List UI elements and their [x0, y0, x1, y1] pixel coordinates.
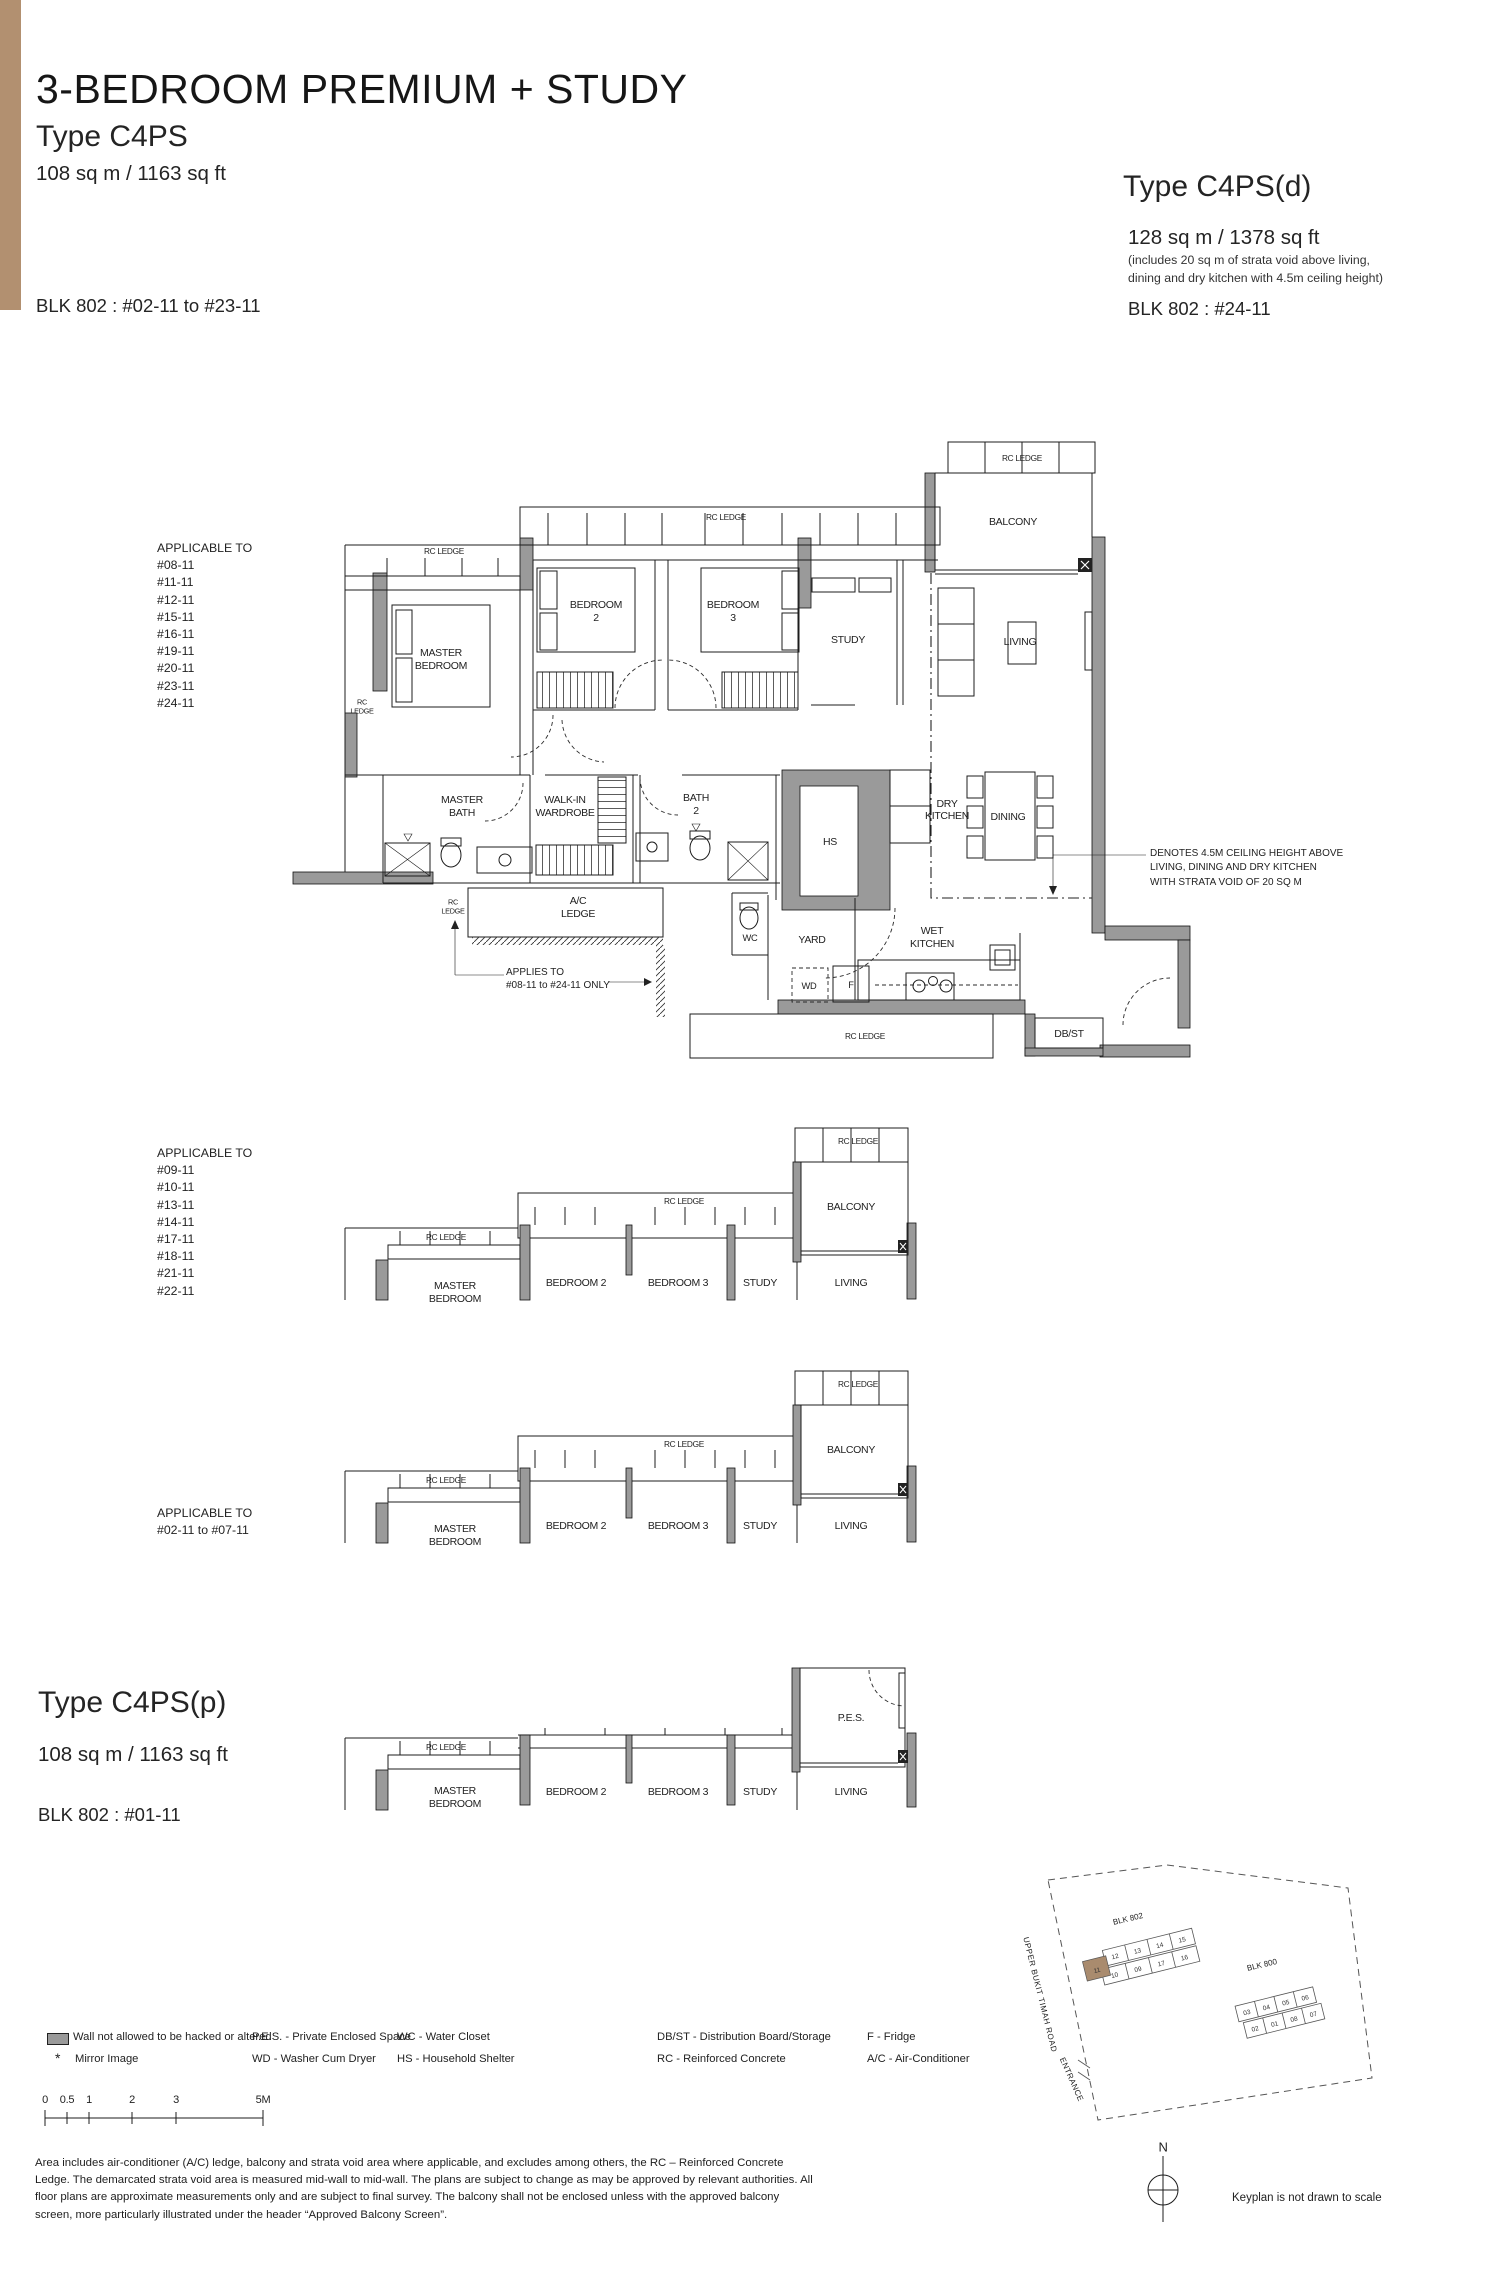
room-study: STUDY — [743, 1786, 777, 1798]
room-living: LIVING — [835, 1786, 868, 1798]
applicable-title: APPLICABLE TO — [157, 540, 252, 557]
bath2-fixtures — [636, 831, 768, 880]
room-balcony: BALCONY — [827, 1201, 875, 1213]
unit-item: #21-11 — [157, 1265, 252, 1282]
unit-item: #08-11 — [157, 557, 252, 574]
unit-number: 04 — [1262, 2004, 1271, 2013]
keyplan: 12 13 14 15 10 09 17 16 11 03 04 05 06 0… — [1048, 1865, 1372, 2222]
legend-hs: HS - Household Shelter — [397, 2053, 515, 2065]
rc-ledge-label: RC — [448, 898, 458, 907]
room-living: LIVING — [1004, 636, 1037, 648]
room-bedroom3: 3 — [730, 612, 736, 624]
rc-ledge-label: LEDGE — [441, 907, 464, 916]
room-master-bedroom: MASTER — [434, 1280, 476, 1292]
applicable-title: APPLICABLE TO — [157, 1505, 252, 1522]
rc-ledge-label: RC LEDGE — [664, 1439, 704, 1449]
room-ac-ledge: A/C — [570, 895, 587, 907]
legend-dbst: DB/ST - Distribution Board/Storage — [657, 2031, 831, 2043]
unit-number: 16 — [1180, 1954, 1189, 1963]
rc-ledge-label: RC — [357, 698, 367, 707]
room-master-bath: MASTER — [441, 794, 483, 806]
applicable-list-1: APPLICABLE TO #08-11 #11-11 #12-11 #15-1… — [157, 540, 252, 712]
type-p-blk: BLK 802 : #01-11 — [38, 1804, 181, 1826]
type-right-area: 128 sq m / 1378 sq ft — [1128, 226, 1319, 250]
floor-plan-strip-a — [345, 1128, 916, 1300]
page-title: 3-BEDROOM PREMIUM + STUDY — [36, 66, 687, 113]
rc-ledge-label: RC LEDGE — [706, 512, 746, 522]
legend-pes: P.E.S. - Private Enclosed Space — [252, 2031, 411, 2043]
wall-legend-swatch — [47, 2033, 69, 2045]
room-master-bedroom: BEDROOM — [429, 1293, 481, 1305]
room-master-bedroom: MASTER — [434, 1785, 476, 1797]
unit-number: 01 — [1270, 2020, 1279, 2029]
room-yard: YARD — [798, 934, 825, 946]
room-bedroom2: BEDROOM 2 — [546, 1277, 606, 1289]
rc-ledge-label: RC LEDGE — [1002, 453, 1042, 463]
room-dining: DINING — [991, 811, 1026, 823]
keyplan-blk800: 03 04 05 06 02 01 08 07 — [1235, 1986, 1325, 2039]
applicable-title: APPLICABLE TO — [157, 1145, 252, 1162]
unit-item: #20-11 — [157, 660, 252, 677]
unit-number: 03 — [1243, 2009, 1252, 2018]
type-left-area: 108 sq m / 1163 sq ft — [36, 162, 226, 186]
room-bedroom2: 2 — [593, 612, 599, 624]
legend-ac: A/C - Air-Conditioner — [867, 2053, 970, 2065]
room-bath2: BATH — [683, 792, 709, 804]
room-balcony: BALCONY — [989, 516, 1037, 528]
room-wet-kitchen: WET — [921, 925, 943, 937]
legend-wall: Wall not allowed to be hacked or altered — [73, 2031, 272, 2043]
entrance-chevron — [1078, 2060, 1090, 2080]
rc-ledge-label: RC LEDGE — [838, 1379, 878, 1389]
unit-item: #13-11 — [157, 1197, 252, 1214]
room-bedroom3: BEDROOM 3 — [648, 1786, 708, 1798]
room-master-bedroom: BEDROOM — [415, 660, 467, 672]
wardrobe-2 — [537, 672, 613, 708]
room-balcony: BALCONY — [827, 1444, 875, 1456]
keyplan-note: Keyplan is not drawn to scale — [1232, 2192, 1382, 2204]
mirror-image-icon: * — [55, 2050, 60, 2066]
legend-rc: RC - Reinforced Concrete — [657, 2053, 786, 2065]
unit-item: #16-11 — [157, 626, 252, 643]
unit-item: #09-11 — [157, 1162, 252, 1179]
unit-item: #17-11 — [157, 1231, 252, 1248]
room-bedroom3: BEDROOM — [707, 599, 759, 611]
room-master-bedroom: MASTER — [434, 1523, 476, 1535]
rc-ledge-label: RC LEDGE — [426, 1232, 466, 1242]
unit-item: #15-11 — [157, 609, 252, 626]
applies-annotation: APPLIES TO #08-11 to #24-11 ONLY — [506, 966, 610, 992]
room-study: STUDY — [743, 1277, 777, 1289]
type-right-name: Type C4PS(d) — [1123, 170, 1311, 204]
scale-tick: 0 — [42, 2094, 48, 2106]
fixture-fridge: F — [848, 980, 853, 990]
unit-item: #24-11 — [157, 695, 252, 712]
sofa — [938, 588, 974, 696]
disclaimer-line: Area includes air-conditioner (A/C) ledg… — [35, 2155, 813, 2172]
unit-item: #10-11 — [157, 1179, 252, 1196]
room-pes: P.E.S. — [838, 1712, 865, 1724]
unit-item: #23-11 — [157, 678, 252, 695]
room-dbst: DB/ST — [1054, 1028, 1083, 1040]
floorplan-brochure-page: 12 13 14 15 10 09 17 16 11 03 04 05 06 0… — [0, 0, 1505, 2289]
room-study: STUDY — [831, 634, 865, 646]
rc-ledge-label: RC LEDGE — [426, 1742, 466, 1752]
floor-plan-strip-b — [345, 1371, 916, 1543]
room-living: LIVING — [835, 1520, 868, 1532]
applies-line: #08-11 to #24-11 ONLY — [506, 979, 610, 992]
room-bedroom2: BEDROOM 2 — [546, 1786, 606, 1798]
unit-item: #12-11 — [157, 592, 252, 609]
unit-range: #02-11 to #07-11 — [157, 1522, 252, 1539]
unit-item: #22-11 — [157, 1283, 252, 1300]
type-p-name: Type C4PS(p) — [38, 1686, 226, 1720]
room-living: LIVING — [835, 1277, 868, 1289]
room-ac-ledge: LEDGE — [561, 908, 595, 920]
type-right-blk: BLK 802 : #24-11 — [1128, 298, 1271, 320]
unit-number: 06 — [1301, 1994, 1310, 2003]
unit-item: #11-11 — [157, 574, 252, 591]
room-master-bath: BATH — [449, 807, 475, 819]
master-bath-fixtures — [385, 838, 532, 876]
unit-item: #18-11 — [157, 1248, 252, 1265]
scale-tick: 1 — [86, 2094, 92, 2106]
room-hs: HS — [823, 836, 837, 848]
scale-tick: 5M — [256, 2094, 271, 2106]
rc-ledge-label: RC LEDGE — [838, 1136, 878, 1146]
type-left-name: Type C4PS — [36, 120, 188, 154]
applies-line: APPLIES TO — [506, 966, 610, 979]
room-walkin-wardrobe: WARDROBE — [535, 807, 594, 819]
rc-ledge-label: RC LEDGE — [664, 1196, 704, 1206]
compass-icon — [1148, 2156, 1178, 2222]
unit-number: 13 — [1133, 1947, 1142, 1956]
disclaimer-line: screen, more particularly illustrated un… — [35, 2207, 813, 2224]
type-p-area: 108 sq m / 1163 sq ft — [38, 1743, 228, 1767]
rc-ledge-label: RC LEDGE — [845, 1031, 885, 1041]
fixture-wd: WD — [802, 981, 817, 991]
scale-tick: 3 — [173, 2094, 179, 2106]
unit-number: 09 — [1134, 1966, 1143, 1975]
disclaimer-line: floor plans are approximate measurements… — [35, 2189, 813, 2206]
wc-fixtures — [732, 893, 768, 955]
walkin-rail — [536, 845, 613, 875]
type-left-blk: BLK 802 : #02-11 to #23-11 — [36, 295, 261, 317]
room-bedroom3: BEDROOM 3 — [648, 1277, 708, 1289]
unit-number: 17 — [1157, 1960, 1166, 1969]
unit-number: 10 — [1110, 1971, 1119, 1980]
unit-number: 02 — [1251, 2025, 1260, 2034]
disclaimer-line: Ledge. The demarcated strata void area i… — [35, 2172, 813, 2189]
unit-number: 07 — [1309, 2011, 1318, 2020]
denotes-annotation: DENOTES 4.5M CEILING HEIGHT ABOVE LIVING… — [1150, 847, 1343, 890]
unit-number: 05 — [1282, 1999, 1291, 2008]
denotes-line: DENOTES 4.5M CEILING HEIGHT ABOVE — [1150, 847, 1343, 861]
room-bedroom3: BEDROOM 3 — [648, 1520, 708, 1532]
keyplan-blk802: 12 13 14 15 10 09 17 16 11 — [1081, 1928, 1200, 1989]
wardrobe-3 — [722, 672, 798, 708]
applicable-list-3: APPLICABLE TO #02-11 to #07-11 — [157, 1505, 252, 1539]
legend-mirror: Mirror Image — [75, 2053, 138, 2065]
rc-ledge-label: RC LEDGE — [426, 1475, 466, 1485]
room-bath2: 2 — [693, 805, 699, 817]
legend-wc: WC - Water Closet — [397, 2031, 490, 2043]
rc-ledge-label: RC LEDGE — [424, 546, 464, 556]
legend-f: F - Fridge — [867, 2031, 916, 2043]
room-master-bedroom: BEDROOM — [429, 1798, 481, 1810]
unit-number: 14 — [1156, 1942, 1165, 1951]
floor-plan-strip-p — [345, 1668, 916, 1810]
applicable-list-2: APPLICABLE TO #09-11 #10-11 #13-11 #14-1… — [157, 1145, 252, 1300]
denotes-line: WITH STRATA VOID OF 20 SQ M — [1150, 876, 1343, 890]
scale-tick: 0.5 — [60, 2094, 74, 2106]
room-wet-kitchen: KITCHEN — [910, 938, 954, 950]
room-bedroom2: BEDROOM 2 — [546, 1520, 606, 1532]
unit-item: #19-11 — [157, 643, 252, 660]
room-wc: WC — [743, 933, 758, 943]
tv-console — [1085, 612, 1092, 670]
room-master-bedroom: MASTER — [420, 647, 462, 659]
type-right-note2: dining and dry kitchen with 4.5m ceiling… — [1128, 271, 1383, 285]
room-study: STUDY — [743, 1520, 777, 1532]
walkin-shelves — [598, 777, 626, 843]
unit-item: #14-11 — [157, 1214, 252, 1231]
denotes-line: LIVING, DINING AND DRY KITCHEN — [1150, 861, 1343, 875]
rc-ledge-label: LEDGE — [350, 707, 373, 716]
type-right-note1: (includes 20 sq m of strata void above l… — [1128, 253, 1370, 267]
room-dry-kitchen: DRY — [936, 798, 957, 810]
floor-plan-main — [293, 442, 1190, 1058]
unit-number: 12 — [1111, 1953, 1120, 1962]
room-dry-kitchen: KITCHEN — [925, 810, 969, 822]
disclaimer: Area includes air-conditioner (A/C) ledg… — [35, 2155, 813, 2224]
legend-wd: WD - Washer Cum Dryer — [252, 2053, 376, 2065]
unit-number: 15 — [1178, 1936, 1187, 1945]
room-master-bedroom: BEDROOM — [429, 1536, 481, 1548]
room-walkin-wardrobe: WALK-IN — [544, 794, 585, 806]
compass-north-label: N — [1158, 2140, 1167, 2155]
scale-bar — [45, 2110, 263, 2126]
scale-tick: 2 — [129, 2094, 135, 2106]
unit-number: 08 — [1290, 2015, 1299, 2024]
room-bedroom2: BEDROOM — [570, 599, 622, 611]
